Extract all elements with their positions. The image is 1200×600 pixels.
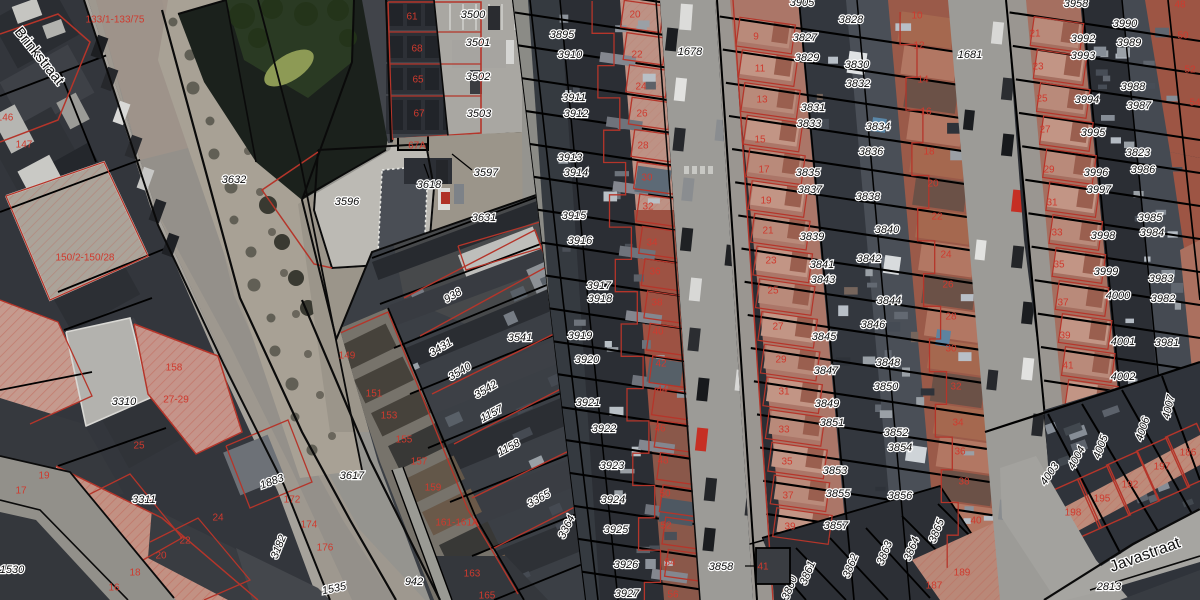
svg-text:9: 9 [753,32,759,43]
svg-text:61: 61 [406,12,418,23]
svg-text:11: 11 [755,64,766,75]
svg-text:4001: 4001 [1111,336,1135,348]
svg-text:3914: 3914 [564,167,588,179]
svg-text:3857: 3857 [824,520,849,532]
svg-text:3503: 3503 [467,108,492,120]
svg-text:37: 37 [1057,298,1069,309]
svg-text:3913: 3913 [558,152,583,164]
svg-text:3618: 3618 [417,179,442,191]
svg-text:20: 20 [927,179,939,190]
svg-text:16: 16 [108,583,120,594]
svg-text:41: 41 [1062,361,1074,372]
svg-text:198: 198 [1065,508,1082,519]
svg-text:36: 36 [649,267,661,278]
svg-text:3986: 3986 [1131,164,1156,176]
svg-text:28: 28 [945,312,957,323]
svg-text:24: 24 [212,513,224,524]
svg-text:27: 27 [1039,125,1051,136]
svg-text:3596: 3596 [335,196,360,208]
svg-text:3911: 3911 [562,92,586,104]
svg-text:39: 39 [784,522,796,533]
svg-text:157: 157 [411,457,428,468]
svg-text:3918: 3918 [588,293,613,305]
svg-text:25: 25 [767,286,779,297]
svg-text:3910: 3910 [558,49,583,61]
svg-text:3837: 3837 [798,184,823,196]
svg-text:3982: 3982 [1151,293,1175,305]
svg-text:22: 22 [631,50,643,61]
svg-text:38: 38 [651,298,663,309]
svg-text:4000: 4000 [1106,290,1131,302]
svg-text:31: 31 [1046,198,1058,209]
svg-text:3912: 3912 [564,108,588,120]
svg-text:1681: 1681 [958,49,982,61]
svg-text:3915: 3915 [562,210,587,222]
svg-text:16: 16 [920,107,932,118]
svg-text:3920: 3920 [575,354,600,366]
svg-text:35: 35 [1053,260,1065,271]
svg-text:3839: 3839 [800,231,824,243]
svg-text:3631: 3631 [472,212,496,224]
svg-text:50: 50 [1177,31,1189,42]
svg-text:161-161A: 161-161A [435,518,479,529]
svg-text:3922: 3922 [592,423,616,435]
svg-text:158: 158 [166,363,183,374]
svg-text:10: 10 [911,11,923,22]
svg-text:3597: 3597 [474,167,499,179]
svg-text:3833: 3833 [797,118,822,130]
svg-text:48: 48 [1174,0,1186,11]
svg-text:3844: 3844 [877,295,901,307]
svg-text:54: 54 [1189,98,1200,109]
svg-text:48: 48 [657,456,669,467]
svg-text:18: 18 [923,147,935,158]
svg-text:3836: 3836 [859,146,884,158]
svg-text:150/2-150/28: 150/2-150/28 [56,253,115,264]
svg-text:186: 186 [1180,448,1197,459]
svg-text:3923: 3923 [600,460,625,472]
svg-text:165: 165 [479,591,496,600]
svg-text:31: 31 [778,387,790,398]
svg-text:24: 24 [940,250,952,261]
svg-text:3617: 3617 [340,470,365,482]
svg-text:3846: 3846 [861,319,886,331]
svg-text:4002: 4002 [1111,371,1135,383]
svg-text:52: 52 [660,521,672,532]
svg-text:46: 46 [654,424,666,435]
svg-text:3827: 3827 [793,32,818,44]
svg-text:14: 14 [917,75,929,86]
svg-text:3989: 3989 [1117,37,1141,49]
svg-text:44: 44 [656,385,668,396]
svg-text:28: 28 [637,141,649,152]
svg-text:3997: 3997 [1087,184,1112,196]
svg-text:3984: 3984 [1140,227,1164,239]
svg-text:3841: 3841 [810,259,834,271]
svg-text:3311: 3311 [132,494,156,506]
svg-text:34: 34 [952,418,964,429]
svg-text:3843: 3843 [811,274,836,286]
svg-text:3990: 3990 [1113,18,1138,30]
svg-text:40: 40 [970,516,982,527]
svg-text:3829: 3829 [795,52,819,64]
svg-text:21: 21 [762,226,774,237]
svg-text:187: 187 [926,581,943,592]
svg-text:26: 26 [942,280,954,291]
svg-text:18: 18 [129,568,141,579]
svg-text:3855: 3855 [826,488,851,500]
svg-text:32: 32 [950,382,962,393]
svg-text:155: 155 [396,435,413,446]
svg-text:3983: 3983 [1149,273,1174,285]
svg-text:24: 24 [635,82,647,93]
svg-text:17: 17 [15,486,27,497]
svg-text:174: 174 [301,520,318,531]
svg-text:2813: 2813 [1096,581,1122,593]
svg-text:149: 149 [339,351,356,362]
svg-text:29: 29 [1043,165,1055,176]
svg-text:3842: 3842 [857,253,881,265]
svg-text:3632: 3632 [222,174,246,186]
svg-text:3905: 3905 [790,0,815,9]
svg-text:27-29: 27-29 [163,395,189,406]
svg-text:3500: 3500 [461,9,486,21]
svg-text:23: 23 [1032,62,1044,73]
svg-text:40: 40 [652,327,664,338]
svg-text:25: 25 [1036,94,1048,105]
svg-text:3840: 3840 [875,224,900,236]
svg-text:17: 17 [758,165,770,176]
svg-text:38: 38 [958,477,970,488]
svg-text:37: 37 [782,491,794,502]
svg-text:33: 33 [1051,228,1063,239]
svg-text:68: 68 [411,44,423,55]
svg-text:30: 30 [641,173,653,184]
svg-text:3828: 3828 [839,14,864,26]
svg-text:3854: 3854 [888,442,912,454]
svg-text:3834: 3834 [866,121,890,133]
svg-text:197: 197 [1154,462,1171,473]
svg-text:54: 54 [664,558,676,569]
svg-text:21: 21 [1029,29,1041,40]
svg-text:151: 151 [366,389,383,400]
svg-text:65: 65 [412,75,424,86]
svg-text:3927: 3927 [615,588,640,600]
svg-text:3987: 3987 [1127,100,1152,112]
svg-text:3985: 3985 [1138,212,1163,224]
svg-text:27: 27 [772,322,784,333]
svg-text:189: 189 [954,568,971,579]
svg-text:942: 942 [405,576,423,588]
svg-text:56: 56 [667,590,679,600]
svg-text:3988: 3988 [1121,81,1146,93]
svg-text:42: 42 [655,359,667,370]
svg-text:3895: 3895 [550,29,575,41]
svg-text:67: 67 [413,109,425,120]
svg-text:3847: 3847 [814,365,839,377]
svg-text:3981: 3981 [1155,337,1179,349]
svg-text:3919: 3919 [568,330,592,342]
svg-text:3999: 3999 [1094,266,1118,278]
svg-text:192: 192 [1122,480,1139,491]
svg-text:13: 13 [756,95,768,106]
svg-text:32: 32 [642,202,654,213]
svg-text:19: 19 [38,471,50,482]
svg-text:3958: 3958 [1064,0,1089,10]
svg-text:3916: 3916 [568,235,593,247]
svg-text:41: 41 [757,562,769,573]
svg-text:23: 23 [765,256,777,267]
svg-text:3838: 3838 [856,191,881,203]
svg-text:1678: 1678 [678,46,703,58]
svg-text:3852: 3852 [884,427,908,439]
svg-text:26: 26 [636,109,648,120]
svg-text:20: 20 [155,551,167,562]
svg-text:146: 146 [0,113,14,124]
svg-text:3845: 3845 [812,331,837,343]
svg-text:34: 34 [646,238,658,249]
svg-text:147: 147 [16,140,33,151]
svg-text:3998: 3998 [1091,230,1116,242]
svg-text:3848: 3848 [876,357,901,369]
svg-text:176: 176 [317,543,334,554]
svg-text:3925: 3925 [604,524,629,536]
svg-text:15: 15 [754,135,766,146]
svg-text:1530: 1530 [0,564,25,576]
svg-text:195: 195 [1094,494,1111,505]
svg-text:33: 33 [778,425,790,436]
svg-text:3995: 3995 [1081,127,1106,139]
svg-text:36: 36 [954,447,966,458]
svg-text:3823: 3823 [1126,147,1151,159]
svg-text:39: 39 [1059,331,1071,342]
svg-text:12: 12 [913,41,925,52]
svg-text:3993: 3993 [1071,50,1096,62]
svg-text:22: 22 [931,212,943,223]
svg-text:3502: 3502 [466,71,490,83]
svg-text:3917: 3917 [587,280,612,292]
svg-text:3994: 3994 [1075,94,1099,106]
svg-text:35: 35 [781,457,793,468]
svg-text:3831: 3831 [801,102,825,114]
svg-text:153: 153 [381,411,398,422]
svg-text:133/1-133/75: 133/1-133/75 [86,15,145,26]
svg-text:67A: 67A [408,141,426,152]
svg-text:3849: 3849 [815,398,839,410]
svg-text:52: 52 [1184,65,1196,76]
svg-text:20: 20 [629,10,641,21]
svg-text:3541: 3541 [508,332,532,344]
svg-text:159: 159 [425,483,442,494]
svg-text:3856: 3856 [888,490,913,502]
svg-text:25: 25 [133,441,145,452]
svg-text:3858: 3858 [709,561,734,573]
svg-text:3835: 3835 [796,167,821,179]
svg-text:3830: 3830 [845,59,870,71]
svg-text:3853: 3853 [823,465,848,477]
svg-text:3992: 3992 [1071,33,1095,45]
svg-text:3832: 3832 [846,78,870,90]
svg-text:172: 172 [284,495,301,506]
svg-text:3850: 3850 [874,381,899,393]
svg-text:163: 163 [464,569,481,580]
svg-text:3996: 3996 [1084,167,1109,179]
svg-text:3924: 3924 [601,494,625,506]
svg-text:30: 30 [945,344,957,355]
svg-text:29: 29 [775,355,787,366]
svg-text:3310: 3310 [112,396,137,408]
svg-text:3921: 3921 [576,397,600,409]
svg-text:19: 19 [760,196,772,207]
svg-text:50: 50 [659,489,671,500]
svg-text:22: 22 [179,536,191,547]
svg-text:3851: 3851 [820,417,844,429]
svg-text:3926: 3926 [614,559,639,571]
svg-text:3501: 3501 [466,37,490,49]
